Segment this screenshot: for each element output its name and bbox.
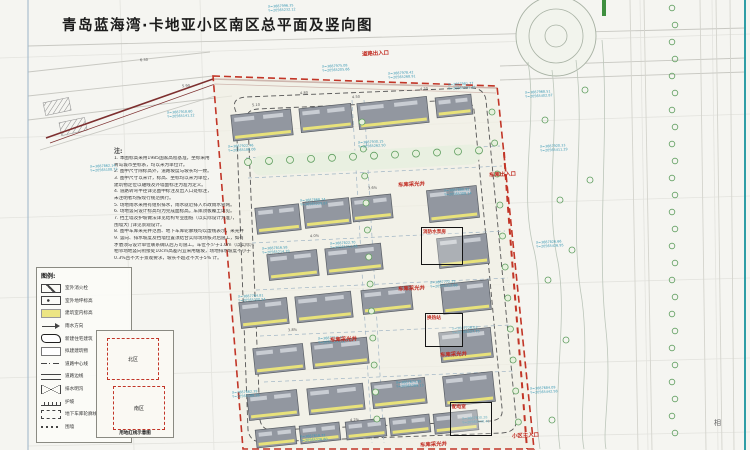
spot-elevation: 4.20 [420, 87, 428, 91]
coordinate-label: X=3687978.42Y=20565268.91 [388, 70, 416, 80]
spot-elevation: 3.6% [368, 186, 377, 190]
note-line: 6. 场地竖向设计标高均为完成面标高，车库顶板覆土详见。 [114, 209, 284, 216]
coordinate-label: X=3687862.14Y=20565108.73 [90, 163, 118, 173]
notes-list: 1. 本图标高采用1985国家高程基准，坐标采用 青岛城市坐标系，均以米为单位计… [114, 156, 284, 263]
note-line: 围墙大门详见景观设计。 [114, 223, 284, 230]
annotation-box-label: 消防水泵房 [423, 229, 446, 235]
planned-building-icon [41, 347, 61, 356]
notes-block: 注: 1. 本图标高采用1985国家高程基准，坐标采用 青岛城市坐标系，均以米为… [114, 146, 284, 263]
garage-outline-icon [41, 410, 61, 419]
coordinate-label: X=3687772.25Y=20565312.68 [430, 279, 458, 289]
coordinate-label: X=3687662.39Y=20565188.26 [232, 389, 260, 399]
note-line: 8. 图中车库采光井范围、地下车库轮廓线均以虚线表示，采光井 [114, 229, 284, 236]
legend-item-label: 道路边线 [65, 373, 83, 379]
spot-elevation: 4.80 [300, 91, 308, 95]
coordinate-label: X=3687684.09Y=20565442.58 [530, 385, 558, 395]
note-line: 2. 图中尺寸除标高外，道路坡度与坡长均一致。 [114, 169, 284, 176]
drawing-title: 青岛蓝海湾·卡地亚小区南区总平面及竖向图 [62, 14, 373, 35]
annotation-box: 换热站 [425, 313, 463, 347]
coordinate-label: X=3687822.70Y=20565251.06 [330, 240, 358, 250]
annotation-box-label: 换热站 [427, 315, 441, 321]
red-annotation: 车库采光井 [420, 439, 447, 448]
keymap-caption: 用地红线示意图 [97, 430, 173, 436]
coordinate-label: X=3687674.95Y=20565289.13 [396, 379, 424, 389]
drain-arrow-icon [41, 322, 61, 331]
red-annotation: 道路出入口 [362, 48, 389, 57]
legend-item: 建筑室内标高 [41, 307, 127, 320]
note-line: 矛盾须与设计单位联系确认后方可施工。车位不少于1.0m（以实际）， [114, 243, 284, 250]
coordinate-label: X=3687920.33Y=20565411.29 [540, 143, 568, 153]
coordinate-label: X=3687996.35Y=20565232.12 [268, 3, 296, 13]
coordinate-label: X=3687618.72Y=20565226.60 [300, 433, 328, 443]
legend-item-label: 雨水方向 [65, 323, 83, 329]
note-line: 4. 道路转弯半径详见图中标注及出入口处标注， [114, 189, 284, 196]
note-line: 9. 竖向、排水坡度及挡墙位置须结合实际现场核对后施工，如有 [114, 236, 284, 243]
slope-icon [41, 397, 61, 406]
legend-item: 室外地坪标高 [41, 295, 127, 308]
legend-item-label: 室外消火栓 [65, 285, 88, 291]
ditch-icon [41, 385, 61, 394]
legend-item-label: 拟建建筑物 [65, 348, 88, 354]
legend-item-label: 排水明沟 [65, 386, 83, 392]
coordinate-label: X=3687922.46Y=20565186.08 [228, 143, 256, 153]
note-line: 7. 挡土墙及护坡做法详见结构专业图纸（以实际设计为准）， [114, 216, 284, 223]
spot-elevation: 4.0% [310, 234, 319, 238]
note-line: 3. 图中尺寸以米计，标高、坐标均以米为单位， [114, 176, 284, 183]
legend-item-label: 室外地坪标高 [65, 298, 93, 304]
note-line: 未注明者均按现行规范执行。 [114, 196, 284, 203]
legend-item-label: 新建住宅建筑 [65, 336, 93, 342]
keymap-north-parcel: 北区 [107, 338, 159, 380]
red-annotation: 车库采光井 [398, 283, 425, 292]
label-overlay: 青岛蓝海湾·卡地亚小区南区总平面及竖向图 注: 1. 本图标高采用1985国家高… [0, 0, 750, 450]
floor-level-icon [41, 309, 61, 318]
neighbor-label: 相 [714, 418, 721, 428]
road-edge-icon [41, 374, 61, 380]
coordinate-label: X=3687764.81Y=20565200.54 [238, 293, 266, 303]
legend-item: 室外消火栓 [41, 282, 127, 295]
spot-elevation: 3.8% [288, 328, 297, 332]
legend-item-label: 护坡 [65, 399, 74, 405]
red-annotation: 车库出入口 [489, 169, 516, 178]
coordinate-label: X=3687930.15Y=20565262.50 [358, 139, 386, 149]
coordinate-label: X=3687826.66Y=20565426.95 [536, 239, 564, 249]
keymap-south-parcel: 南区 [113, 386, 165, 430]
annotation-box: 配电室 [450, 402, 492, 436]
legend-item-label: 建筑室内标高 [65, 310, 93, 316]
legend-item-label: 道路中心线 [65, 361, 88, 367]
wall-icon [41, 422, 61, 431]
note-line: 建筑物定位以轴线及外墙面标注为准为定义。 [114, 183, 284, 190]
hydrant-icon [41, 284, 61, 293]
keymap-south-label: 南区 [134, 405, 144, 412]
drawing-sheet: 青岛蓝海湾·卡地亚小区南区总平面及竖向图 注: 1. 本图标高采用1985国家高… [0, 0, 750, 450]
coordinate-label: X=3687968.51Y=20565402.87 [525, 89, 553, 99]
coordinate-label: X=3687880.92Y=20565308.14 [444, 187, 472, 197]
note-line: 青岛城市坐标系，均以米为单位计。 [114, 163, 284, 170]
spot-elevation: 6.30 [140, 58, 148, 62]
key-map: 北区 南区 用地红线示意图 [96, 330, 174, 438]
annotation-box: 消防水泵房 [421, 227, 463, 265]
spot-elevation: 5.10 [252, 103, 260, 107]
annotation-box-label: 配电室 [452, 404, 466, 410]
spot-level-icon [41, 296, 61, 305]
note-line: 5. 场地雨水采用有组织排水，雨水就近排入市政雨水管网。 [114, 203, 284, 210]
red-annotation: 车库采光井 [398, 179, 425, 188]
coordinate-label: X=3687816.58Y=20565214.39 [262, 245, 290, 255]
red-annotation: 车库采光井 [330, 334, 357, 343]
new-building-icon [41, 334, 61, 343]
red-annotation: 小区主入口 [512, 430, 539, 439]
keymap-north-label: 北区 [128, 356, 138, 363]
spot-elevation: 5.90 [182, 84, 190, 88]
coordinate-label: X=3687868.34Y=20565229.87 [300, 197, 328, 207]
coordinate-label: X=3687981.77Y=20565331.45 [448, 81, 476, 91]
road-center-icon [41, 359, 61, 368]
legend-item-label: 地下车库轮廓线 [65, 411, 97, 417]
note-line: 1. 本图标高采用1985国家高程基准，坐标采用 [114, 156, 284, 163]
coordinate-label: X=3687975.08Y=20565205.66 [322, 63, 350, 73]
notes-header: 注: [114, 146, 284, 155]
red-annotation: 车库采光井 [440, 349, 467, 358]
legend-header: 图例: [41, 271, 127, 280]
spot-elevation: 4.50 [352, 95, 360, 99]
note-line: 相邻场地竖向衔接处10cm高差内宜采用缓坡，场地排水坡度不小于 [114, 249, 284, 256]
coordinate-label: X=3687918.60Y=20565141.22 [167, 109, 195, 119]
note-line: 0.3%且不大于景观要求，坡长不超过不大于5% 计。 [114, 256, 284, 263]
legend-item-label: 围墙 [65, 424, 74, 430]
spot-elevation: 4.2% [350, 418, 359, 422]
